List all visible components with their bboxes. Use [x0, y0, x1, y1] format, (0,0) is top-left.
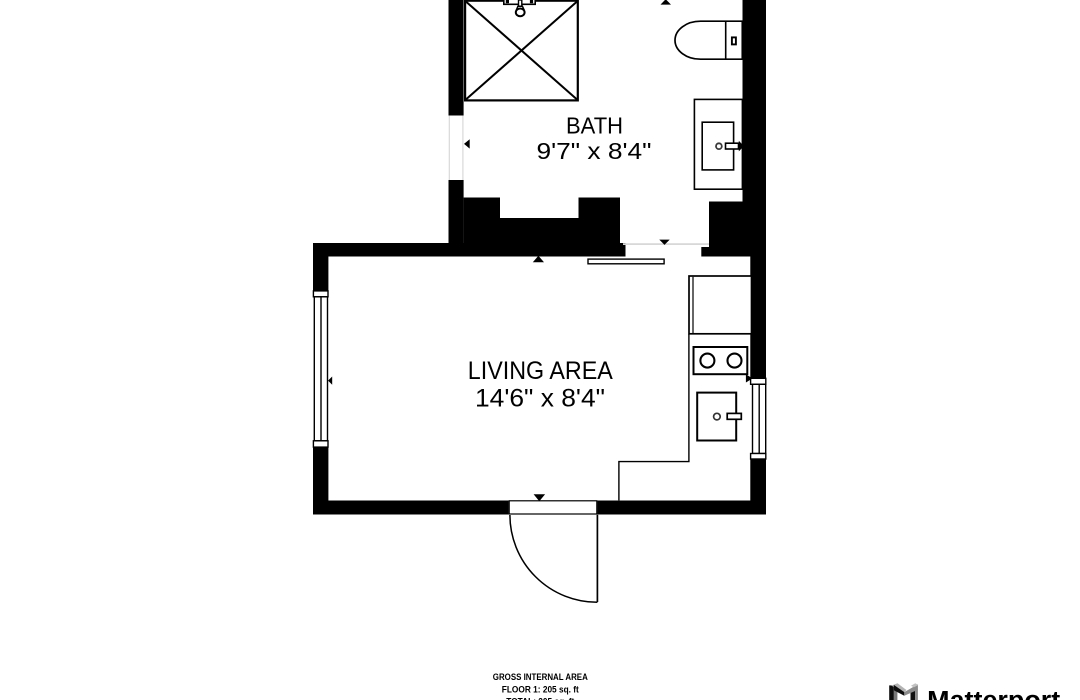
svg-text:14'6" x 8'4": 14'6" x 8'4"	[475, 384, 605, 412]
svg-text:BATH: BATH	[566, 112, 623, 138]
svg-text:9'7" x 8'4": 9'7" x 8'4"	[537, 138, 652, 164]
svg-text:TOTAL: 205 sq. ft: TOTAL: 205 sq. ft	[506, 696, 574, 700]
svg-text:FLOOR 1: 205 sq. ft: FLOOR 1: 205 sq. ft	[502, 684, 579, 694]
svg-text:LIVING AREA: LIVING AREA	[468, 357, 613, 385]
svg-text:Matterport: Matterport	[927, 687, 1061, 700]
svg-text:GROSS INTERNAL AREA: GROSS INTERNAL AREA	[493, 672, 588, 682]
